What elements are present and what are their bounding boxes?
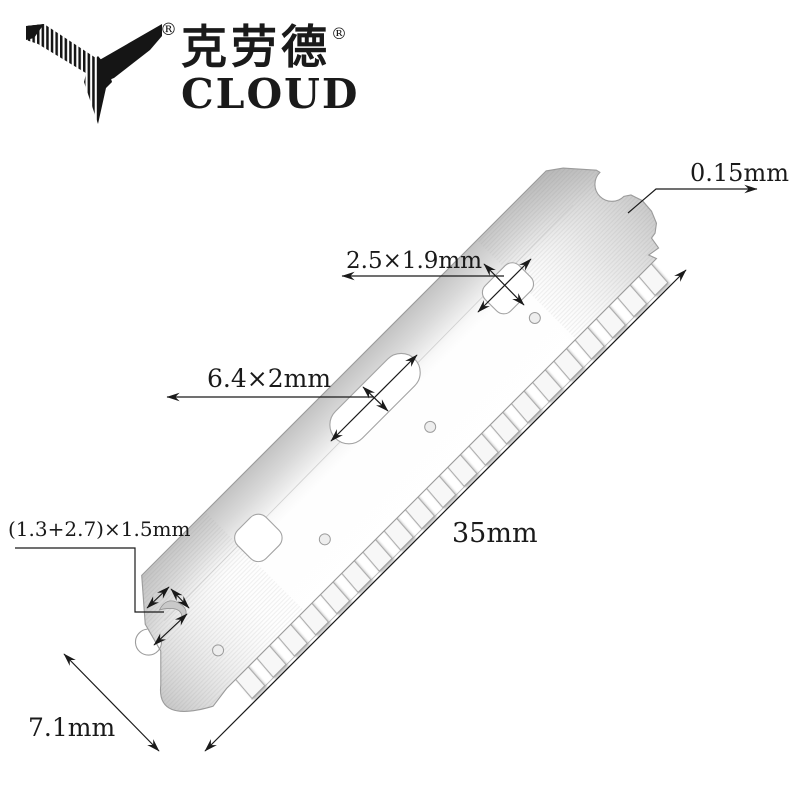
blade-shading [83, 131, 701, 749]
dim-long-slot-label: 6.4×2mm [207, 364, 331, 393]
blade-diagram-canvas: 0.15mm 2.5×1.9mm 6.4×2mm (1.3+2.7)×1.5mm… [0, 0, 800, 800]
dim-notch-label: (1.3+2.7)×1.5mm [8, 517, 191, 541]
blade-illustration [83, 131, 701, 749]
dim-small-hole-label: 2.5×1.9mm [346, 248, 482, 274]
dim-thickness-label: 0.15mm [690, 159, 789, 187]
dim-length-label: 35mm [452, 518, 538, 549]
dim-width-label: 7.1mm [28, 713, 115, 742]
product-diagram-page: { "brand": { "name_cn": "克劳德", "name_en"… [0, 0, 800, 800]
